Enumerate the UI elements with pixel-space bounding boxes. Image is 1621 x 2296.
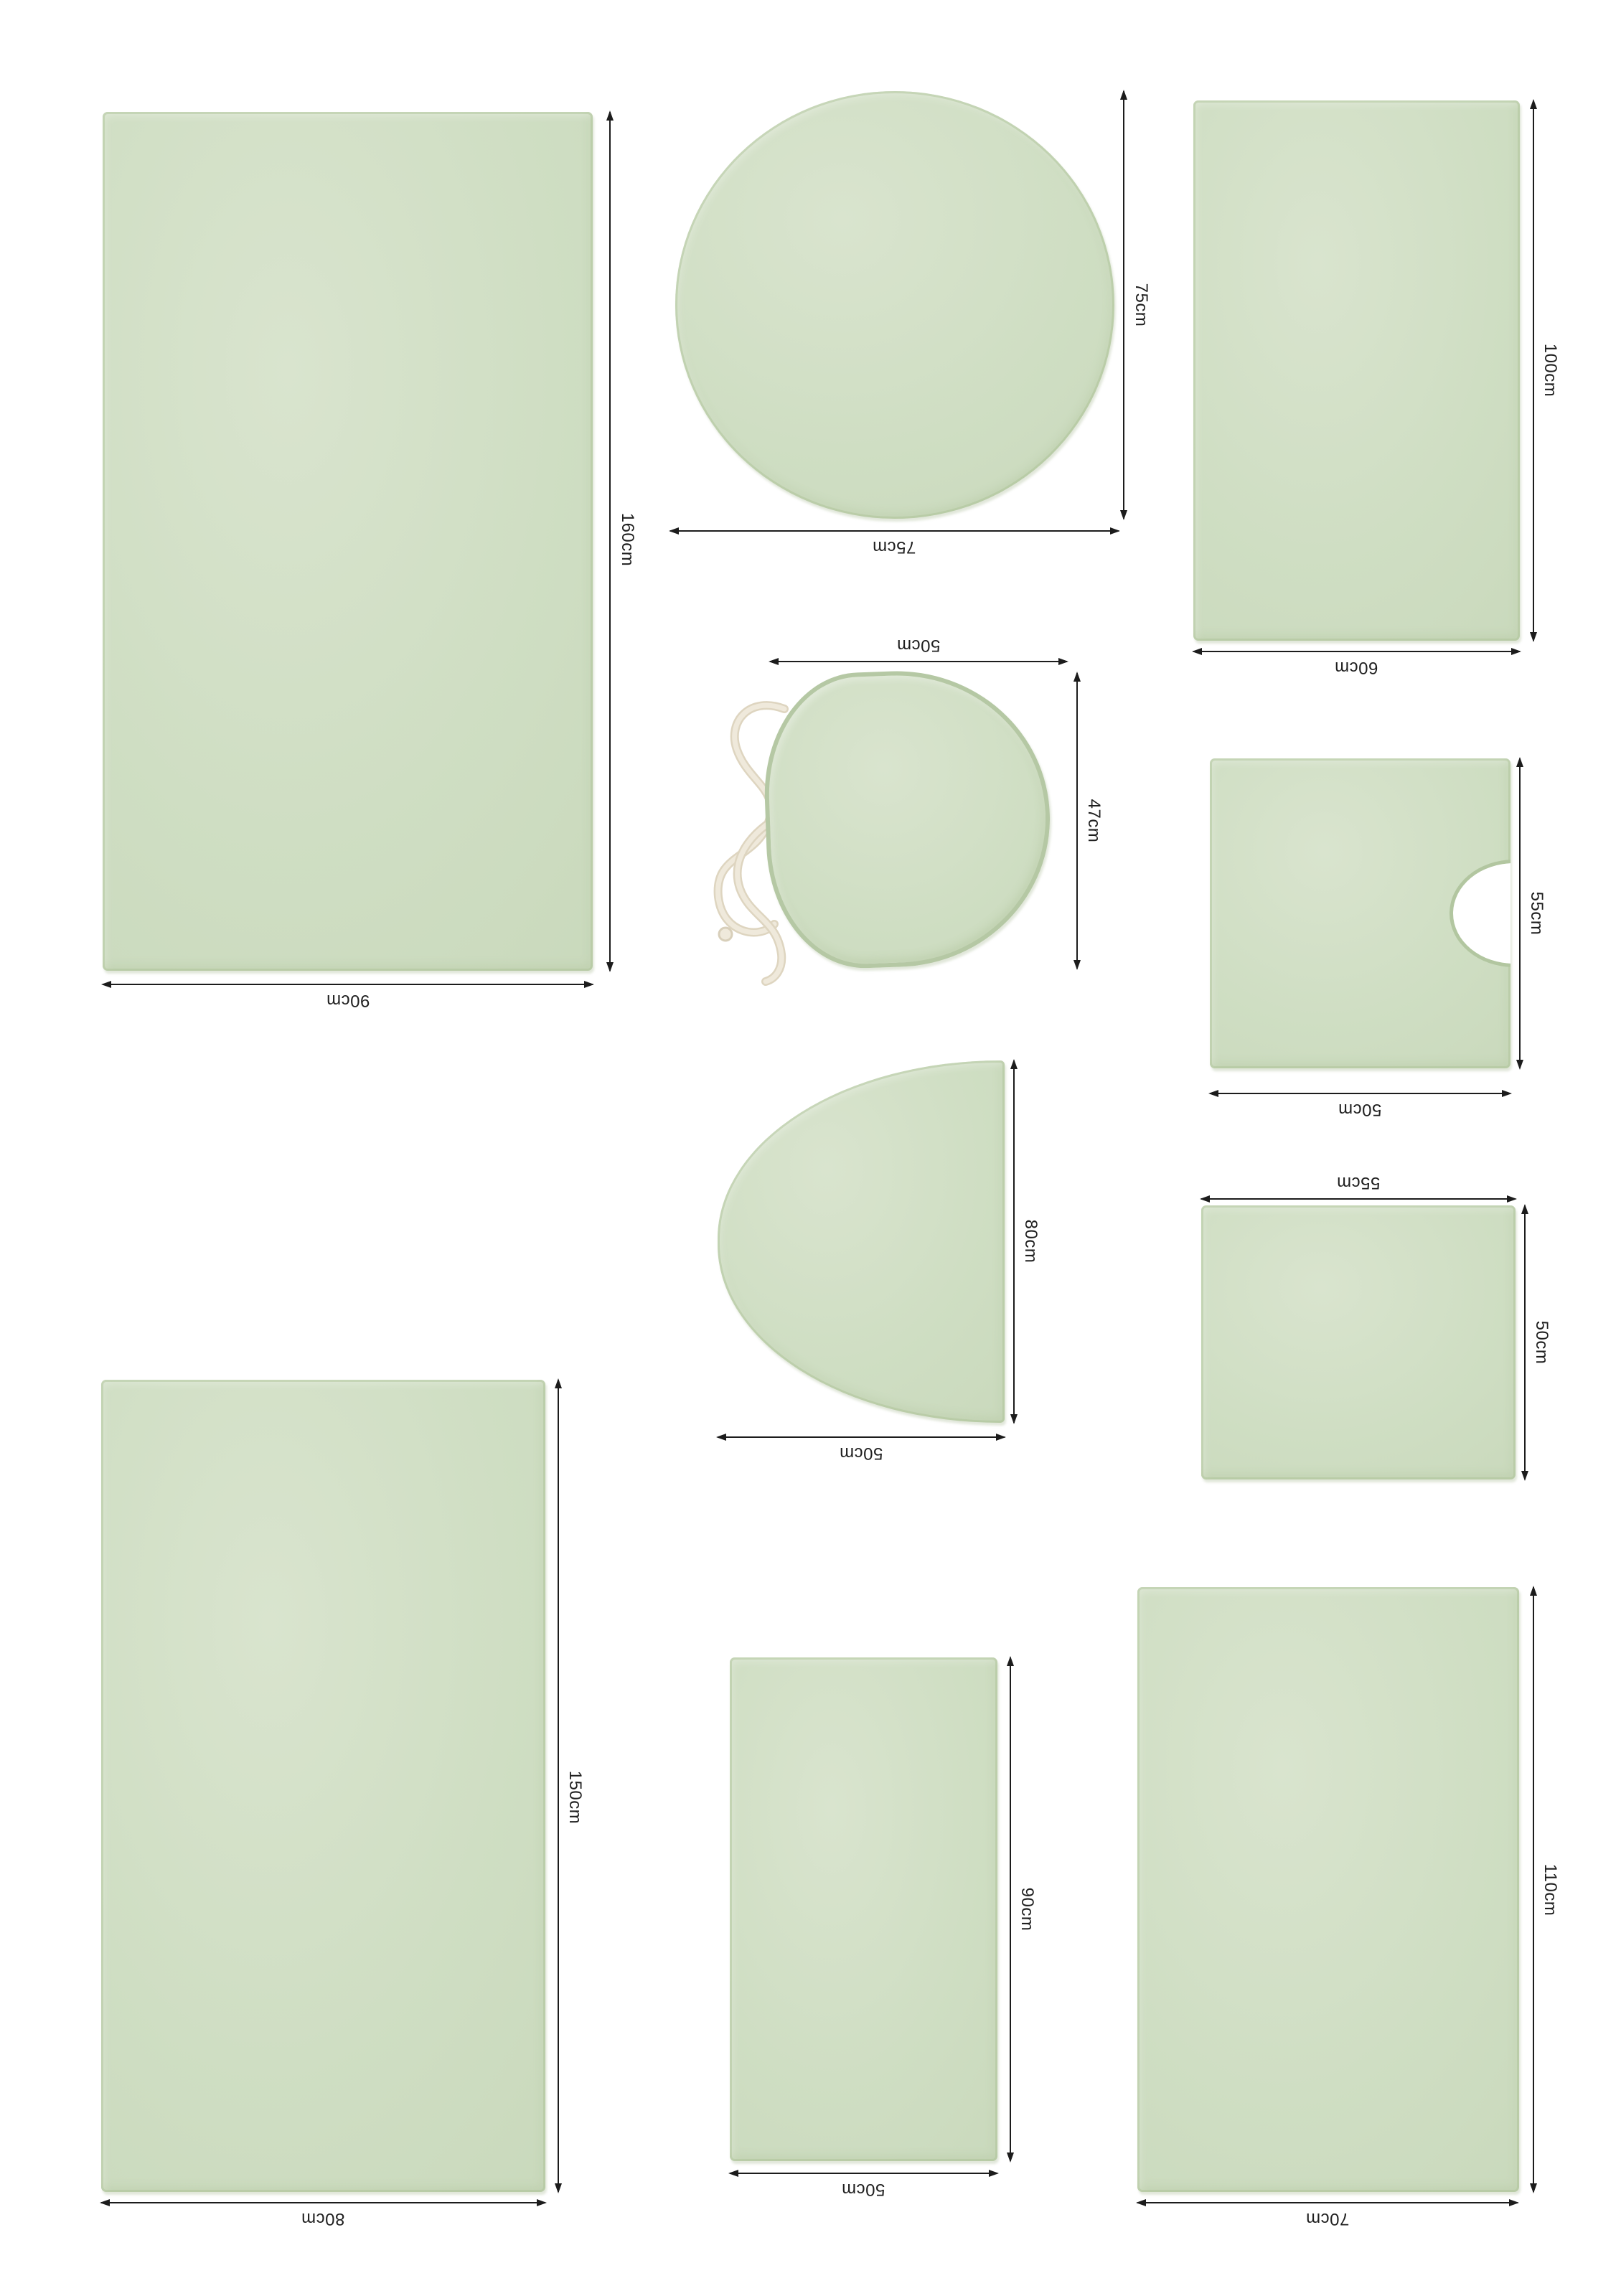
width-dimension-label: 70cm [1306,2208,1350,2229]
height-dimension-label: 110cm [1540,1864,1560,1916]
height-dimension-arrow [1533,1587,1534,2192]
product-rect-mat-70x110: 110cm 70cm [0,0,1621,2296]
rect-mat-70x110-image [1137,1587,1519,2192]
width-dimension-arrow [1137,2202,1518,2203]
bath-mat-dimension-sheet: 160cm 90cm 75cm 75cm 100cm 60cm 50cm 47c… [0,0,1621,2296]
